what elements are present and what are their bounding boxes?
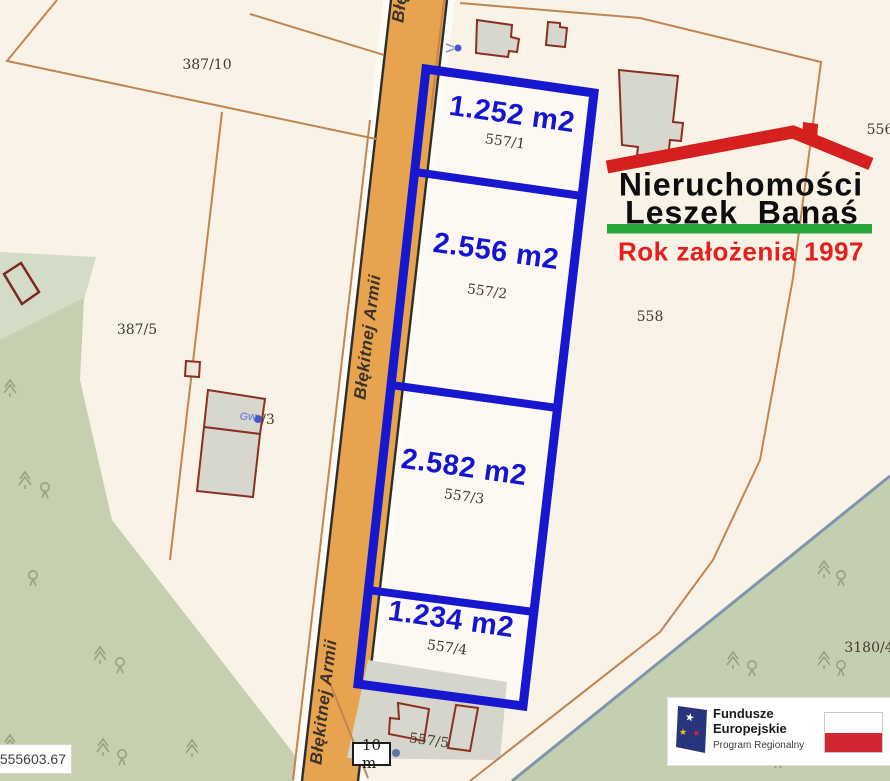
building-top-center bbox=[476, 20, 519, 57]
building-left-lower bbox=[197, 427, 260, 497]
logo-agency-name-line2: Leszek Banaś bbox=[625, 195, 859, 232]
parcel-number-3180-4: 3180/4 bbox=[844, 640, 890, 656]
poland-flag-icon bbox=[824, 712, 883, 753]
eu-program-line1: Fundusze bbox=[713, 706, 774, 721]
coordinate-label: 555603.67 bbox=[0, 751, 66, 767]
cadastral-map bbox=[0, 0, 890, 781]
scale-bar: 10 m bbox=[352, 742, 391, 766]
eu-funds-flag-icon: ★ ★ ★ bbox=[676, 703, 718, 763]
scale-label: 10 m bbox=[362, 736, 381, 772]
eu-program-subtitle: Program Regionalny bbox=[713, 740, 804, 751]
scale-dot-icon bbox=[392, 749, 400, 757]
logo-tagline: Rok założenia 1997 bbox=[618, 237, 864, 268]
parcel-number-556-clipped: 556 bbox=[867, 122, 890, 138]
eu-funds-banner: ★ ★ ★ Fundusze Europejskie Program Regio… bbox=[667, 697, 890, 766]
parcel-number-558: 558 bbox=[637, 309, 664, 325]
eu-program-line2: Europejskie bbox=[713, 721, 787, 736]
parcel-number-387-10: 387/10 bbox=[182, 57, 231, 73]
star-yellow-icon: ★ bbox=[679, 728, 687, 738]
parcel-number-387-5: 387/5 bbox=[117, 322, 157, 338]
shed-on-line bbox=[185, 361, 200, 377]
parcel-number-partial-3: /3 bbox=[261, 412, 275, 428]
listing-map-image: Błękitnej Armii Błękitnej Armii Błękitne… bbox=[0, 0, 890, 781]
coordinate-box: 555603.67 bbox=[0, 744, 72, 774]
utility-label-gw: Gw bbox=[239, 411, 256, 423]
